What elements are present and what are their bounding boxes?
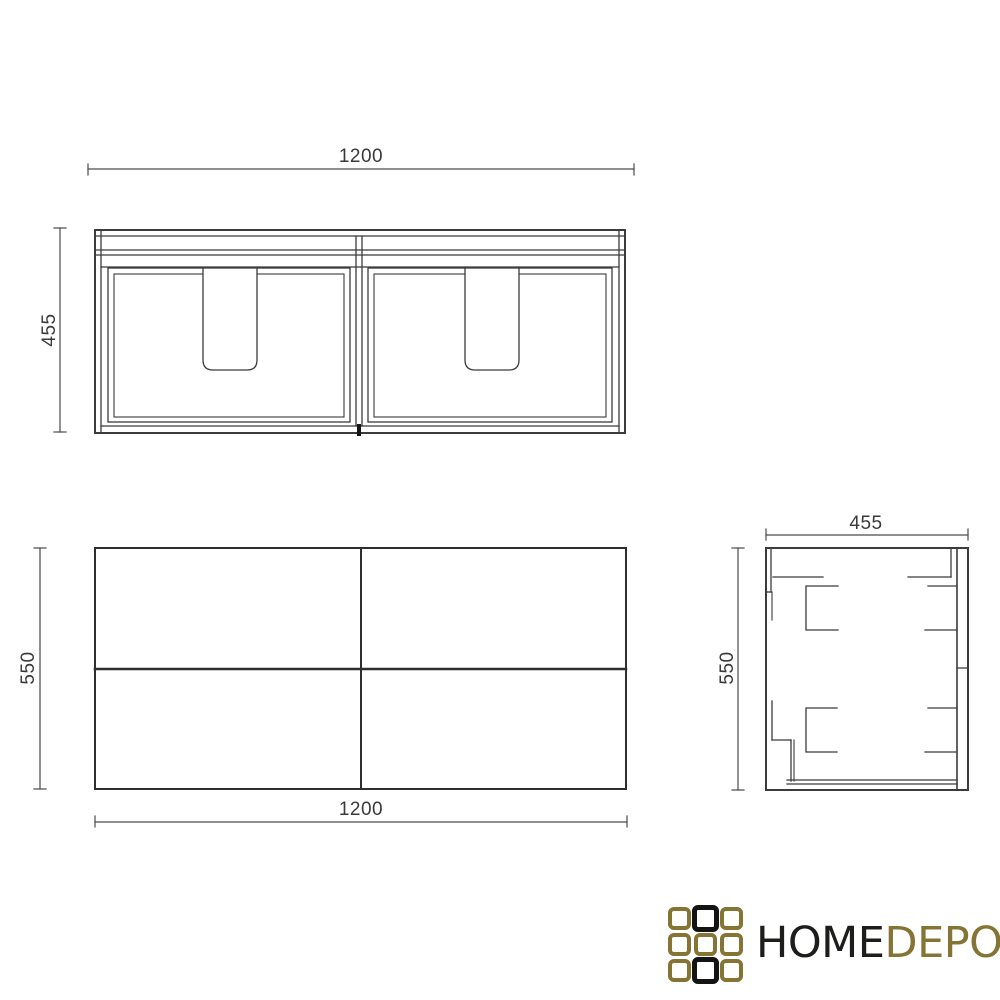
side-section-view — [766, 548, 968, 790]
side-depth-dimension-label: 455 — [849, 513, 882, 535]
logo-text-depo: DEPO — [884, 918, 1000, 968]
logo-grid-square-gold — [720, 933, 743, 956]
logo-wordmark: HOMEDEPO — [756, 922, 1000, 967]
logo-grid-square-gold — [668, 933, 691, 956]
logo-text-home: HOME — [756, 918, 884, 968]
side-outline — [766, 548, 968, 790]
logo-grid-square-gold — [668, 907, 691, 930]
dimension-lines — [34, 164, 968, 827]
front-height-dimension-label: 455 — [39, 313, 61, 346]
front-cabinet-outline — [95, 230, 625, 433]
right-drawer-handle-recess — [465, 268, 519, 370]
plan-view — [95, 548, 626, 789]
homedepo-logo: HOMEDEPO — [667, 906, 1000, 982]
technical-drawing-page: 1200 455 550 1200 455 550 HOMEDEPO — [0, 0, 1000, 1000]
logo-grid-square-gold — [668, 959, 691, 982]
lower-drawer-bracket-front — [806, 708, 837, 752]
front-elevation-view — [95, 230, 625, 434]
front-width-dimension-label: 1200 — [339, 146, 383, 168]
logo-grid-square-black — [692, 905, 719, 932]
logo-grid-square-black — [692, 957, 719, 984]
logo-grid-square-gold — [720, 959, 743, 982]
left-drawer-handle-recess — [203, 268, 257, 370]
logo-grid-square-gold — [694, 933, 717, 956]
logo-grid-square-gold — [720, 907, 743, 930]
plan-depth-dimension-label: 550 — [18, 651, 40, 684]
upper-drawer-bracket-front — [806, 586, 838, 630]
plan-width-dimension-label: 1200 — [339, 799, 383, 821]
side-height-dimension-label: 550 — [717, 651, 739, 684]
cad-drawing — [0, 0, 1000, 1000]
logo-grid-icon — [667, 906, 743, 982]
